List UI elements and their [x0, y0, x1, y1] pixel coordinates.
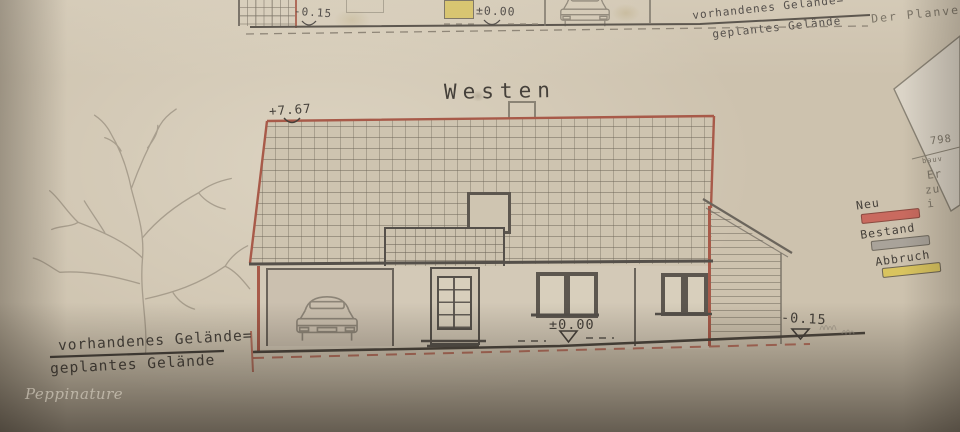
- entrance-canopy-roof: [384, 227, 505, 268]
- titleblock-line2: zu: [924, 182, 941, 197]
- railing-sketch: [238, 0, 295, 26]
- ground-level-label: -0.15: [781, 310, 827, 328]
- window-right: [661, 273, 708, 316]
- tree-sketch: [25, 105, 260, 355]
- tree-branch: [95, 115, 132, 188]
- legend-label-neu: Neu: [855, 195, 880, 212]
- top-zero-level-marker: [484, 20, 500, 25]
- top-level-zero-label: ±0.00: [476, 3, 516, 18]
- car-left-light: [563, 16, 570, 19]
- top-level-minus-label: -0.15: [294, 5, 333, 21]
- window-sash: [663, 275, 683, 314]
- car-right-light: [345, 328, 354, 331]
- window-sash: [568, 274, 596, 316]
- ground-label-2: geplantes Gelände: [50, 353, 216, 378]
- car-wheels: [302, 332, 351, 340]
- tree-branch: [146, 246, 250, 299]
- minus-level-marker: [792, 329, 809, 339]
- car-sketch-garage: [286, 290, 368, 342]
- window-left: [536, 272, 598, 318]
- window-sketch-faint: [346, 0, 384, 13]
- elevation-title: Westen: [444, 78, 556, 104]
- car-right-light: [600, 16, 607, 19]
- titleblock-line3: i: [926, 197, 935, 211]
- top-ground-label-2: geplantes Gelände: [712, 14, 842, 40]
- window-sash: [538, 274, 566, 316]
- extension-annex: [710, 206, 781, 342]
- top-minus-level-marker: [302, 21, 316, 25]
- car-sketch-top: [552, 0, 618, 28]
- titleblock-number: 798: [929, 133, 952, 148]
- entry-door: [430, 267, 480, 345]
- tree-branch: [143, 178, 232, 237]
- car-left-light: [300, 328, 309, 331]
- car-rear-window: [571, 0, 599, 1]
- titleblock-line1: Er: [926, 167, 943, 182]
- tree-twigs: [84, 125, 194, 309]
- abbruch-door: [444, 0, 474, 19]
- car-rear-window: [310, 302, 344, 309]
- floor-level-label: ±0.00: [549, 317, 595, 333]
- tree-branch: [50, 191, 143, 258]
- car-wheels: [565, 20, 605, 26]
- planner-note-label: Der Planverfa: [871, 2, 960, 26]
- titleblock-small-text: bauv: [922, 155, 944, 165]
- tree-branch: [131, 109, 176, 189]
- watermark: Peppinature: [25, 385, 123, 403]
- blueprint-photo: -0.15 ±0.00 vorhandenes Gelände= geplant…: [0, 0, 960, 432]
- ridge-level-label: +7.67: [269, 101, 313, 119]
- door-glazing: [437, 276, 472, 330]
- tree-branch: [33, 258, 139, 284]
- wall-corner-line: [634, 268, 636, 346]
- tree-trunk: [131, 189, 146, 353]
- car-pillars: [564, 3, 607, 10]
- car-plate: [317, 328, 336, 332]
- window-sash: [686, 275, 706, 314]
- car-pillars: [300, 311, 353, 319]
